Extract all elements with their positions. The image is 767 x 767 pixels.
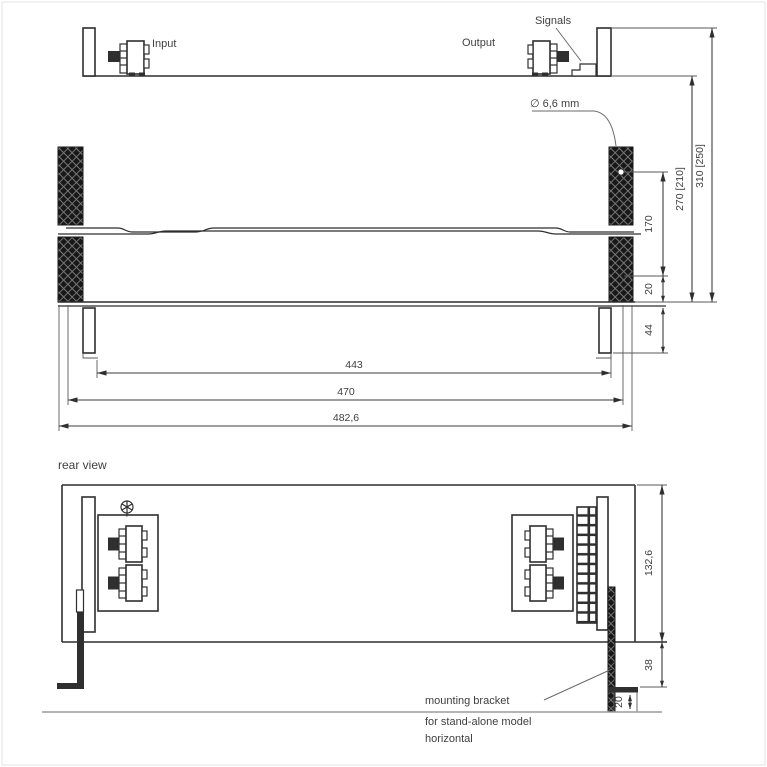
svg-text:170: 170 [643,215,655,233]
right-mounting-ear [597,28,611,76]
note-line-2: for stand-alone model [425,716,531,728]
dimension-width-mid-470: 470 [68,305,623,405]
label-output: Output [462,37,495,49]
svg-text:20: 20 [613,696,625,708]
svg-text:132,6: 132,6 [643,550,655,576]
dimension-rail-height-44: 44 [613,308,668,353]
left-mounting-bracket [57,590,84,689]
svg-text:310 [250]: 310 [250] [694,144,706,188]
svg-text:482,6: 482,6 [333,412,359,424]
mounting-bracket-note: mounting bracket for stand-alone model h… [425,669,612,745]
dimension-width-inner-443: 443 [97,356,611,378]
left-hatched-rail [58,147,83,302]
left-mounting-ear [83,28,95,76]
svg-text:20: 20 [643,283,655,295]
top-view: Input Output Signals ∅ 6,6 mm 170 20 44 … [58,15,717,431]
svg-text:443: 443 [345,359,363,371]
note-line-3: horizontal [425,733,473,745]
dimension-height-132-6: 132,6 [637,485,667,642]
label-mounting-hole-diameter: ∅ 6,6 mm [530,98,579,110]
svg-text:44: 44 [643,324,655,336]
dimensional-drawing-page: Input Output Signals ∅ 6,6 mm 170 20 44 … [0,0,767,767]
svg-text:270 [210]: 270 [210] [674,167,686,211]
rear-view: rear view [42,458,667,745]
image-border [2,2,765,765]
note-line-1: mounting bracket [425,695,509,707]
svg-text:38: 38 [643,659,655,671]
input-connector [108,41,149,76]
label-signals: Signals [535,15,572,27]
svg-text:470: 470 [337,386,355,398]
bottom-feet [83,308,611,358]
dimension-base-offset-20: 20 [643,276,663,302]
rear-view-title: rear view [58,458,107,472]
note-leader-line [544,669,612,700]
terminal-block [577,507,596,623]
label-input: Input [152,38,176,50]
mounting-hole [618,169,624,175]
signals-connector [572,64,596,76]
dimension-foot-height-20: 20 [613,695,630,709]
break-lines [58,228,641,234]
dimension-bracket-drop-38: 38 [640,642,667,687]
screw-head-icon [121,501,133,517]
technical-drawing-canvas: Input Output Signals ∅ 6,6 mm 170 20 44 … [0,0,767,767]
right-mounting-bracket [608,587,638,712]
hole-leader-line [532,111,616,146]
output-connector [528,41,569,76]
right-panel-plate [597,497,608,630]
